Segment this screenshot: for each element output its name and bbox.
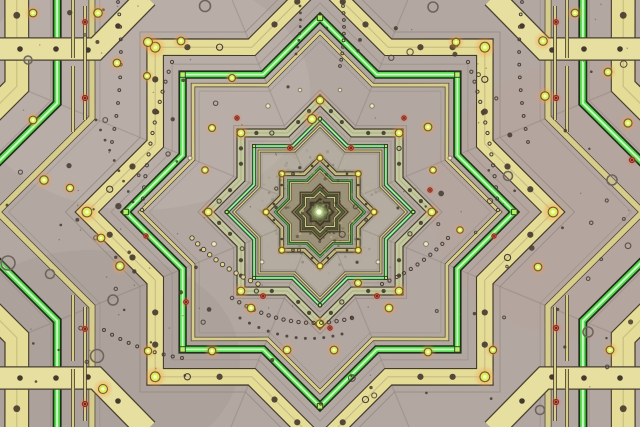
glow-dot: [25, 5, 42, 22]
glow-dot: [140, 343, 156, 359]
glow-dot: [200, 204, 217, 221]
glow-dot: [88, 3, 107, 22]
glow-dot: [485, 342, 501, 358]
glow-dot: [233, 125, 250, 142]
glow-dot: [144, 366, 166, 388]
glow-dot: [198, 163, 211, 176]
red-dot: [180, 296, 192, 308]
red-dot: [79, 323, 91, 335]
glow-dot: [173, 33, 190, 50]
kaleidoscope-canvas: [0, 0, 640, 427]
glow-dot: [381, 300, 398, 317]
glow-dot: [351, 276, 366, 291]
glow-dot: [204, 343, 221, 360]
kaleidoscope-artwork: [0, 0, 640, 427]
red-dot: [371, 290, 383, 302]
glow-dot: [276, 168, 288, 180]
red-dot: [79, 16, 91, 28]
glow-dot: [352, 244, 364, 256]
glow-dot: [279, 342, 296, 359]
red-dot: [550, 396, 562, 408]
glow-dot: [420, 119, 437, 136]
glow-dot: [474, 36, 496, 58]
glow-dot: [533, 31, 552, 50]
glow-dot: [542, 201, 564, 223]
glow-dot: [110, 256, 129, 275]
glow-dot: [138, 32, 158, 52]
glow-dot: [448, 34, 465, 51]
glow-dot: [619, 114, 637, 132]
glow-dot: [567, 5, 584, 22]
glow-dot: [600, 64, 617, 81]
red-dot: [399, 113, 410, 124]
glow-dot: [302, 109, 322, 129]
red-dot: [325, 323, 336, 334]
glow-dot: [62, 180, 78, 196]
red-dot: [79, 398, 91, 410]
glow-dot: [260, 206, 272, 218]
glow-dot: [474, 366, 496, 388]
red-dot: [284, 142, 296, 154]
glow-dot: [93, 379, 113, 399]
glow-dot: [453, 223, 466, 236]
glow-dot: [205, 121, 220, 136]
red-dot: [232, 113, 243, 124]
glow-dot: [602, 342, 619, 359]
glow-dot: [233, 283, 250, 300]
glow-dot: [140, 69, 155, 84]
glow-dot: [312, 92, 329, 109]
red-dot: [141, 231, 152, 242]
glow-dot: [109, 55, 126, 72]
glow-dot: [391, 125, 408, 142]
red-dot: [489, 231, 500, 242]
red-dot: [257, 290, 269, 302]
red-dot: [345, 142, 357, 154]
glow-dot: [426, 163, 439, 176]
red-dot: [550, 16, 562, 28]
glow-dot: [93, 230, 110, 247]
glow-dot: [276, 244, 288, 256]
glow-dot: [34, 170, 53, 189]
glow-dot: [25, 112, 42, 129]
glow-dot: [420, 344, 437, 361]
red-dot: [550, 322, 562, 334]
glow-dot: [530, 259, 547, 276]
glow-dot: [225, 71, 240, 86]
glow-dot: [535, 86, 554, 105]
red-dot: [79, 92, 91, 104]
red-dot: [425, 185, 436, 196]
glow-dot: [391, 283, 408, 300]
glow-dot: [243, 300, 260, 317]
glow-dot: [326, 342, 343, 359]
red-dot: [626, 154, 638, 166]
